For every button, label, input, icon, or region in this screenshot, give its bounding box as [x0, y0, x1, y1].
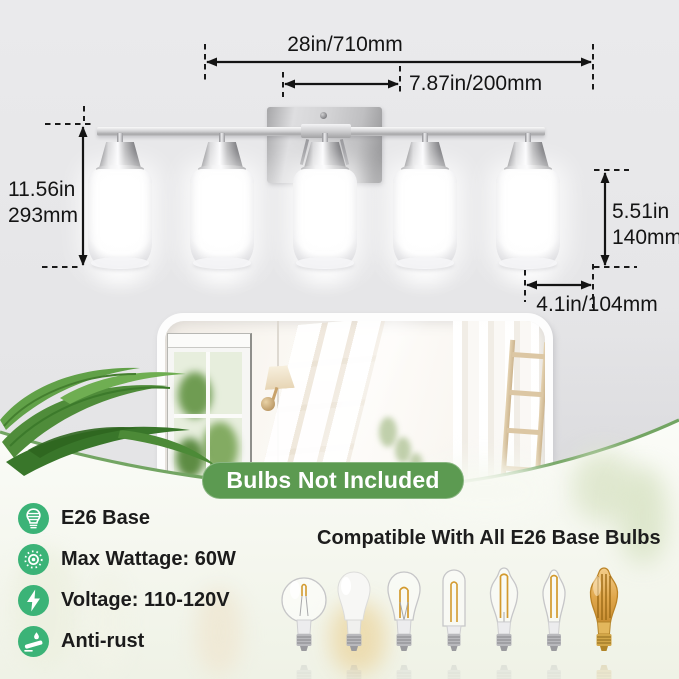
- st64-edison-filament-bulb: [481, 562, 527, 658]
- g25-globe-filament-bulb: [281, 658, 327, 679]
- glass-shade-5: [496, 169, 560, 268]
- dimension-shade-height-in: 5.51in: [612, 199, 679, 225]
- a19-clear-filament-bulb: [381, 658, 427, 679]
- g25-globe-filament-bulb: [281, 562, 327, 658]
- dimension-fixture-height-mm: 293mm: [8, 203, 78, 229]
- dimension-fixture-height: 11.56in 293mm: [8, 177, 78, 229]
- feature-label: Max Wattage: 60W: [61, 544, 236, 575]
- compatibility-heading: Compatible With All E26 Base Bulbs: [317, 527, 661, 550]
- bulbs-not-included-badge: Bulbs Not Included: [202, 462, 464, 499]
- a19-clear-filament-bulb: [381, 562, 427, 658]
- t10-tube-filament-bulb: [431, 562, 477, 658]
- max-wattage-icon: [18, 544, 49, 575]
- a19-frosted-bulb: [331, 658, 377, 679]
- voltage-icon: [18, 585, 49, 616]
- e26-base-icon: [18, 503, 49, 534]
- a19-frosted-bulb: [331, 562, 377, 658]
- feature-anti-rust: Anti-rust: [18, 626, 144, 657]
- st64-edison-filament-bulb: [481, 658, 527, 679]
- dimension-shade-width: 4.1in/104mm: [527, 293, 667, 317]
- feature-max-wattage: Max Wattage: 60W: [18, 544, 236, 575]
- st58-edison-filament-bulb: [531, 562, 577, 658]
- feature-e26-base: E26 Base: [18, 503, 150, 534]
- anti-rust-icon: [18, 626, 49, 657]
- dimension-total-width: 28in/710mm: [245, 33, 445, 57]
- t10-tube-filament-bulb: [431, 658, 477, 679]
- st58-edison-filament-bulb: [531, 658, 577, 679]
- st64-amber-vintage-bulb: [581, 562, 627, 658]
- bulbs-row-reflection: [281, 658, 627, 679]
- glass-shade-4: [393, 169, 457, 268]
- glass-shade-2: [190, 169, 254, 268]
- glass-shade-3: [293, 169, 357, 268]
- feature-label: E26 Base: [61, 503, 150, 534]
- dimension-fixture-height-in: 11.56in: [8, 177, 78, 203]
- dimension-backplate-width: 7.87in/200mm: [409, 72, 542, 96]
- product-infographic: 28in/710mm 7.87in/200mm 11.56in 293mm 5.…: [0, 0, 679, 679]
- glass-shade-1: [88, 169, 152, 268]
- bulbs-row: [281, 562, 627, 658]
- screw-icon: [320, 112, 327, 119]
- feature-label: Anti-rust: [61, 626, 144, 657]
- dimension-shade-height: 5.51in 140mm: [612, 199, 679, 251]
- st64-amber-vintage-bulb: [581, 658, 627, 679]
- feature-voltage: Voltage: 110-120V: [18, 585, 230, 616]
- dimension-shade-height-mm: 140mm: [612, 225, 679, 251]
- feature-label: Voltage: 110-120V: [61, 585, 230, 616]
